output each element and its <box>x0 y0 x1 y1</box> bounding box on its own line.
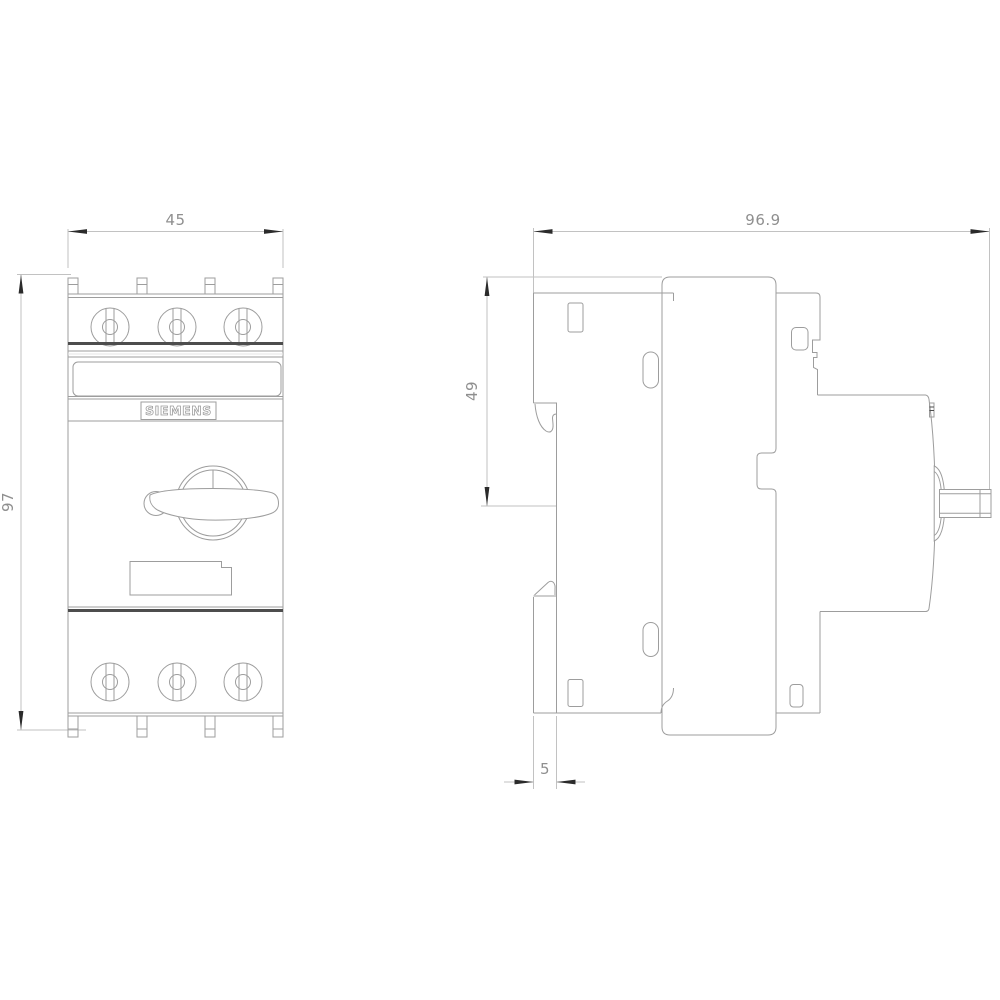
upper-rail-claw <box>535 404 557 432</box>
vent-slot-pill <box>643 623 659 657</box>
mounting-tab <box>205 716 215 737</box>
dimension-width-45: 45 <box>68 211 283 268</box>
mounting-tab <box>68 716 78 737</box>
dimension-rail-offset-5: 5 <box>504 716 585 789</box>
bottom-mounting-tabs <box>68 716 283 737</box>
arrowhead-left <box>534 229 553 234</box>
front-housing-section <box>776 293 935 713</box>
side-view: 96.9 49 <box>463 211 991 789</box>
technical-drawing-page: 45 97 <box>0 0 1000 1000</box>
top-mounting-tabs <box>68 278 283 294</box>
terminal-screw <box>224 308 262 346</box>
arrowhead-top <box>19 275 24 294</box>
lower-terminal-screws <box>91 663 262 701</box>
front-view: 45 97 <box>0 211 283 737</box>
marking-field <box>73 362 281 396</box>
mounting-tab <box>273 716 283 737</box>
brand-logo-plate: SIEMENS <box>141 402 216 420</box>
vent-slot-pill <box>643 352 659 388</box>
arrowhead-bottom <box>485 487 490 506</box>
din-rail-section <box>534 293 674 713</box>
dimension-upper-depth-49: 49 <box>463 277 662 506</box>
technical-drawing-canvas: 45 97 <box>0 0 1000 1000</box>
vent-slot <box>568 303 583 332</box>
vent-slot <box>568 680 583 707</box>
arrowhead-right <box>971 229 990 234</box>
terminal-screw <box>158 308 196 346</box>
lower-rail-claw <box>535 581 556 595</box>
terminal-screw <box>224 663 262 701</box>
dim-upper-depth-label: 49 <box>463 381 481 401</box>
front-face-top-edge <box>818 395 930 400</box>
brand-logo-text: SIEMENS <box>145 403 212 418</box>
rating-label <box>130 562 232 596</box>
arrowhead-left <box>68 229 87 234</box>
latch-slot <box>790 685 803 708</box>
terminal-screw <box>91 663 129 701</box>
mounting-tab <box>137 278 147 294</box>
arrowhead-right <box>557 780 576 785</box>
central-housing <box>662 277 776 735</box>
terminal-screw <box>158 663 196 701</box>
latch-slot <box>792 328 809 351</box>
front-section-top-profile <box>776 293 820 395</box>
dim-rail-offset-label: 5 <box>540 760 550 778</box>
knob-side-profile <box>934 466 991 541</box>
mounting-tab <box>137 716 147 737</box>
arrowhead-right <box>264 229 283 234</box>
rotary-knob <box>144 466 279 540</box>
dimension-depth-96-9: 96.9 <box>534 211 990 489</box>
mounting-tab <box>205 278 215 294</box>
mounting-tab <box>68 278 78 294</box>
front-face-bottom-edge <box>820 609 929 612</box>
terminal-screw <box>91 308 129 346</box>
mounting-tab <box>273 278 283 294</box>
arrowhead-left <box>515 780 534 785</box>
rotary-handle <box>150 489 279 521</box>
rear-bottom-step <box>661 688 674 713</box>
dim-width-label: 45 <box>165 211 185 229</box>
arrowhead-top <box>485 277 490 296</box>
dim-height-label: 97 <box>0 492 17 512</box>
dim-depth-label: 96.9 <box>745 211 780 229</box>
arrowhead-bottom <box>19 711 24 730</box>
upper-terminal-screws <box>91 308 262 346</box>
